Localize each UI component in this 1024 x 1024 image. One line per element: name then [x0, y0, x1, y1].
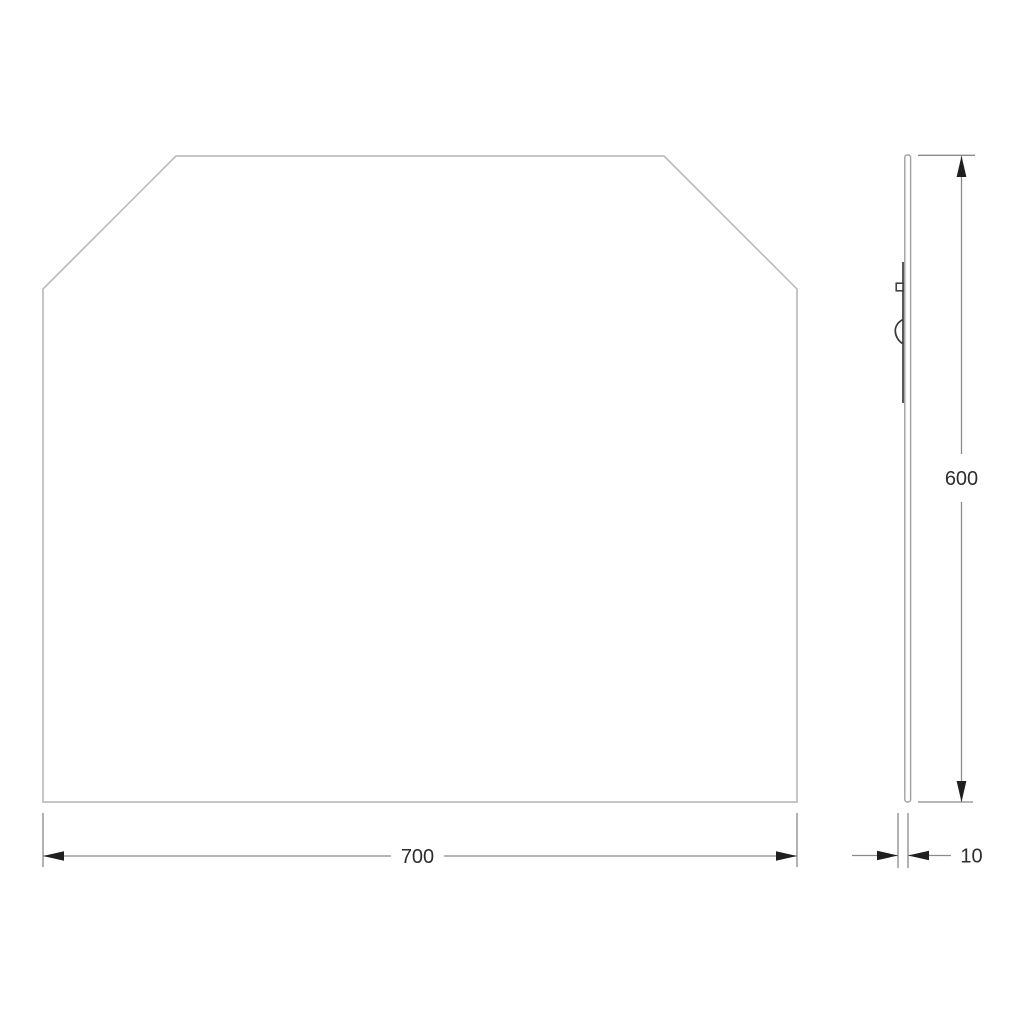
- front-view-outline: [43, 156, 797, 802]
- side-view-panel: [905, 155, 911, 802]
- arrowhead-right-icon: [776, 851, 797, 861]
- height-dimension: 600: [918, 155, 978, 802]
- technical-drawing: 700 600 10: [0, 0, 1024, 1024]
- front-view: [43, 156, 797, 802]
- mounting-bracket: [895, 262, 903, 403]
- arrowhead-up-icon: [957, 156, 967, 177]
- arrowhead-right-icon: [877, 851, 898, 861]
- technical-drawing-canvas: 700 600 10: [0, 0, 1024, 1024]
- arrowhead-down-icon: [957, 781, 967, 802]
- arrowhead-left-icon: [43, 851, 64, 861]
- width-dimension-label: 700: [401, 846, 434, 868]
- bracket-hook: [895, 320, 903, 344]
- side-view: [895, 155, 910, 802]
- height-dimension-label: 600: [945, 468, 978, 490]
- arrowhead-left-icon: [908, 851, 929, 861]
- bracket-tab: [896, 283, 903, 291]
- thickness-dimension-label: 10: [960, 846, 982, 868]
- width-dimension: 700: [43, 813, 797, 868]
- thickness-dimension: 10: [852, 813, 983, 868]
